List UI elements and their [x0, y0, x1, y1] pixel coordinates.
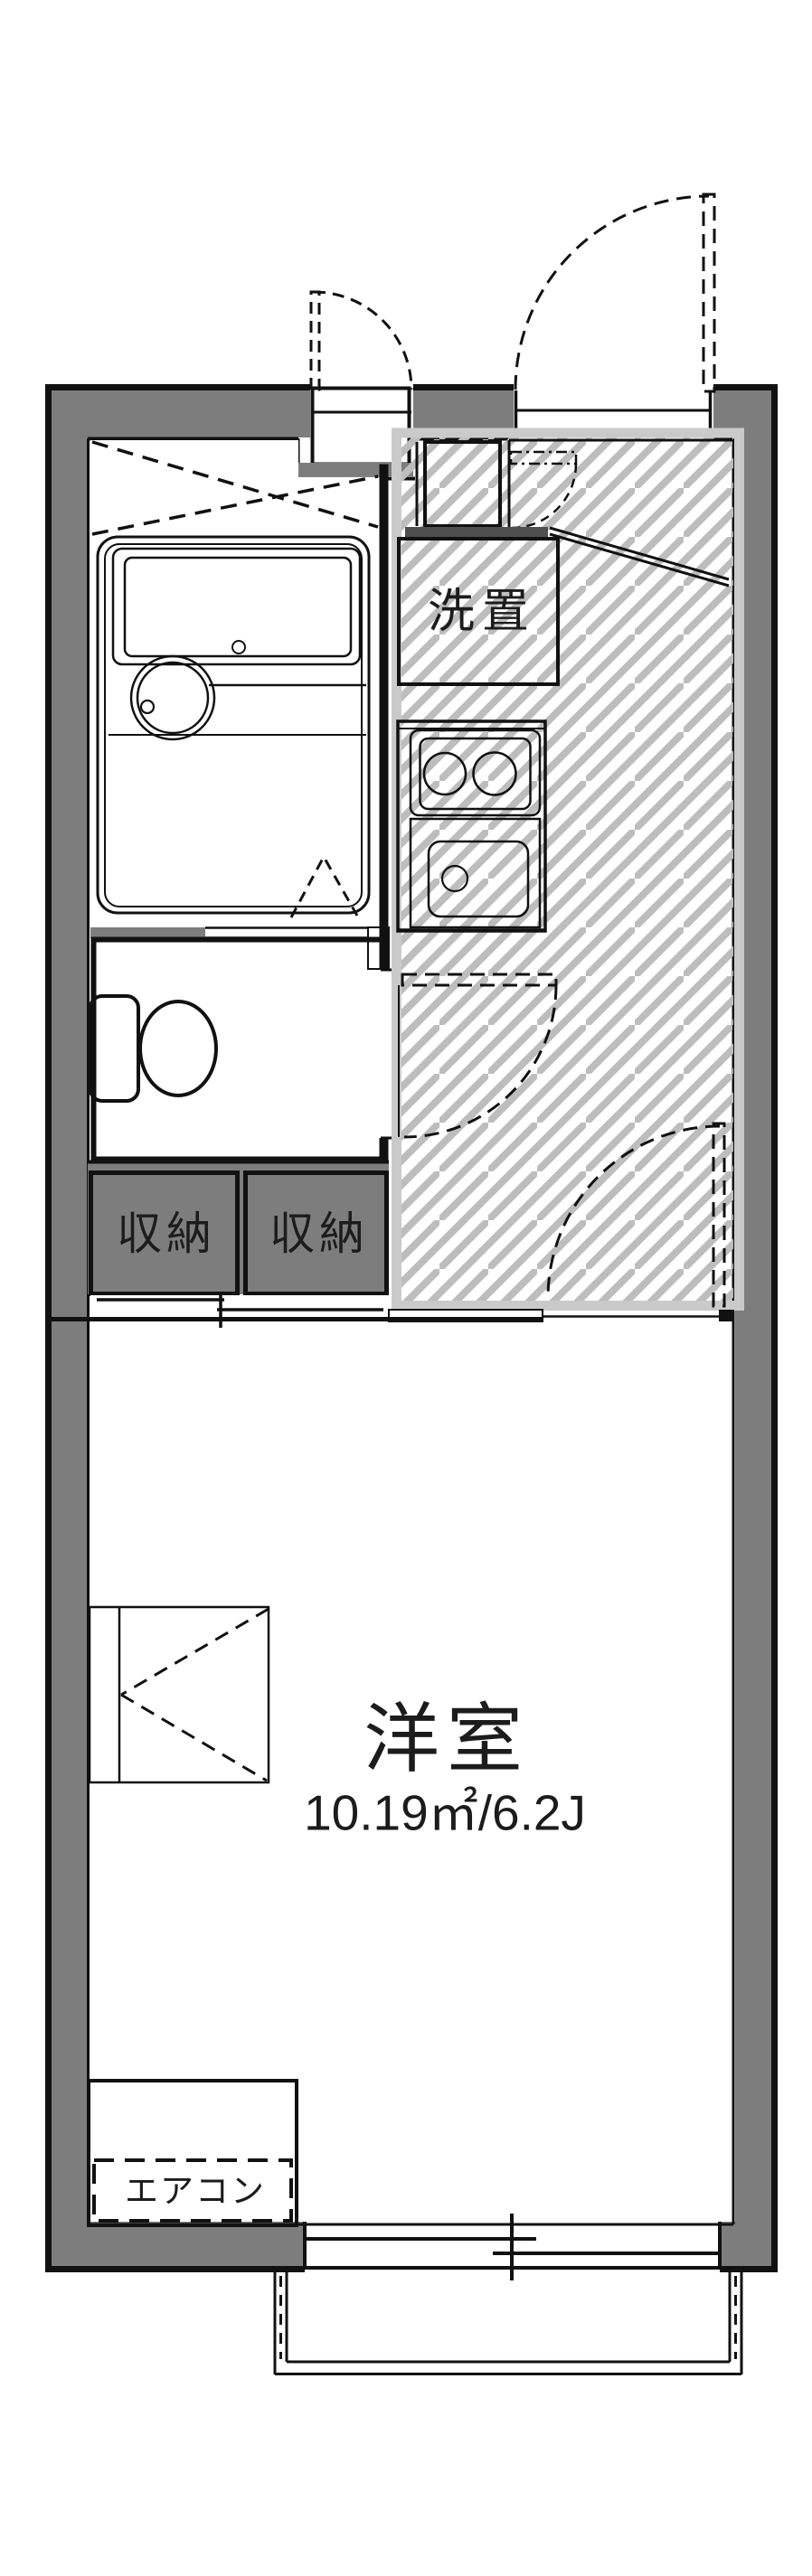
entrance-corridor-floor [392, 428, 744, 1311]
floorplan-drawing [0, 0, 812, 2576]
room-name-label: 洋室 [364, 1701, 530, 1777]
main-window [305, 2214, 720, 2280]
storage-right-label: 収納 [269, 1211, 369, 1256]
washer-space-label: 洗置 [428, 588, 536, 635]
tile-hatch [392, 428, 733, 1311]
storage-left-label: 収納 [117, 1211, 216, 1256]
air-conditioner-label: エアコン [125, 2175, 266, 2208]
floorplan: 洗置 収納 収納 洋室 10.19㎡/6.2J エアコン [0, 0, 812, 2576]
room-area-label: 10.19㎡/6.2J [304, 1789, 586, 1838]
